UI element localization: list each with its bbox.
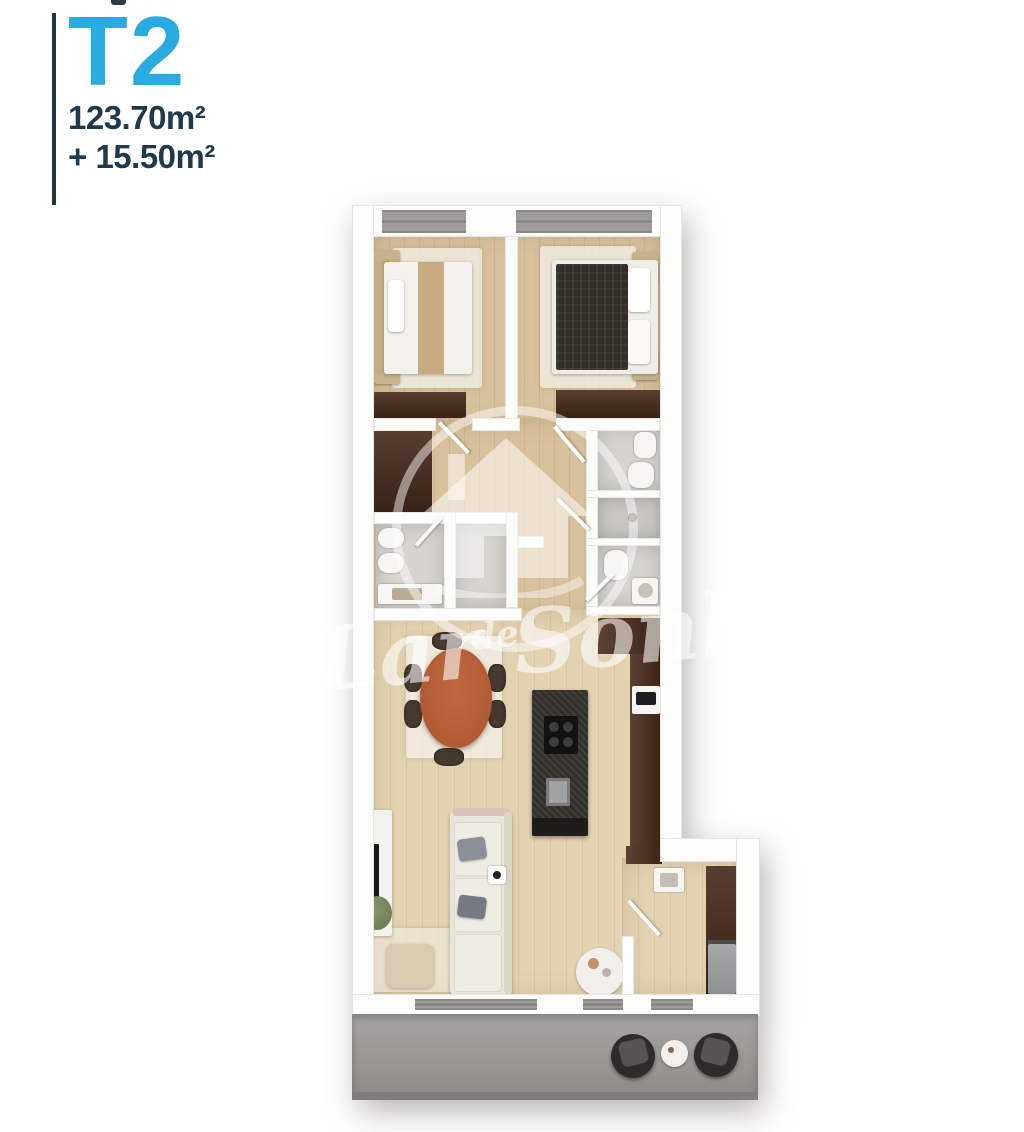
bedroom-2-duvet	[556, 264, 628, 370]
island-sink	[546, 778, 570, 806]
bedroom-1-wardrobe	[374, 392, 466, 418]
wall-bottom	[352, 994, 760, 1016]
bedroom-2-pillow	[628, 268, 650, 312]
shower-drain	[628, 513, 637, 522]
closet-nook-floor	[456, 524, 506, 608]
bedroom-1-headboard	[374, 262, 384, 374]
window-terrace-door	[583, 999, 623, 1010]
floor-plan	[0, 0, 1024, 1132]
sofa-armrest	[504, 812, 512, 994]
sink	[634, 432, 656, 458]
burner	[563, 737, 573, 747]
burner	[563, 722, 573, 732]
bedroom-2-pillow	[628, 320, 650, 364]
bedroom-1-pillow	[388, 280, 404, 332]
window-living	[415, 999, 537, 1010]
page: T2 123.70m² + 15.50m²	[0, 0, 1024, 1132]
wall	[586, 538, 660, 546]
wall-left	[352, 205, 374, 1016]
kitchen-counter-right	[630, 654, 660, 856]
wall-stub	[518, 536, 544, 548]
wall	[374, 418, 436, 431]
laundry-sink-bowl	[660, 873, 678, 887]
sofa-pillow	[457, 894, 487, 919]
ottoman	[386, 944, 434, 988]
wall	[472, 418, 520, 431]
kitchen-counter-top	[598, 618, 660, 654]
wall	[586, 490, 660, 498]
sofa-tray-cup	[493, 871, 501, 879]
wall	[556, 418, 660, 431]
wall	[374, 608, 522, 621]
island-end-panel	[532, 818, 588, 836]
bedroom-1-bed-runner	[418, 262, 444, 374]
wall-bumpout-right	[736, 838, 760, 1016]
wall	[586, 606, 660, 615]
wall-bedroom-divider	[505, 230, 518, 422]
side-table-decor	[602, 968, 611, 977]
window-bedroom-2	[516, 210, 652, 233]
terrace-table-decor	[668, 1047, 674, 1053]
burner	[549, 722, 559, 732]
dining-chair	[434, 748, 464, 766]
wall-stub	[622, 936, 634, 998]
kitchen-oven	[636, 692, 656, 705]
laundry-counter	[626, 846, 662, 864]
hall-closet	[374, 430, 432, 514]
wall-right	[660, 205, 682, 850]
kitchen-island	[532, 690, 588, 836]
sofa-back-edge	[452, 808, 510, 816]
side-table	[576, 948, 624, 996]
bedroom-2-wardrobe	[556, 390, 660, 418]
window-bedroom-1	[382, 210, 466, 233]
cooktop	[544, 716, 578, 754]
wall	[506, 512, 518, 608]
terrace-edge	[352, 1092, 758, 1100]
sink-bowl	[638, 583, 653, 598]
window-laundry	[651, 999, 693, 1010]
sofa-pillow	[457, 836, 488, 862]
toilet	[628, 462, 654, 488]
washing-machine	[708, 940, 736, 994]
terrace-table	[661, 1040, 688, 1067]
sofa-cushion	[454, 934, 502, 992]
burner	[549, 737, 559, 747]
wall	[444, 512, 456, 620]
dining-table	[420, 648, 492, 748]
side-table-decor	[588, 958, 599, 969]
dining-chair	[404, 664, 422, 692]
bidet	[378, 553, 404, 573]
toilet	[378, 528, 404, 548]
bathroom-left-sink	[392, 588, 422, 600]
